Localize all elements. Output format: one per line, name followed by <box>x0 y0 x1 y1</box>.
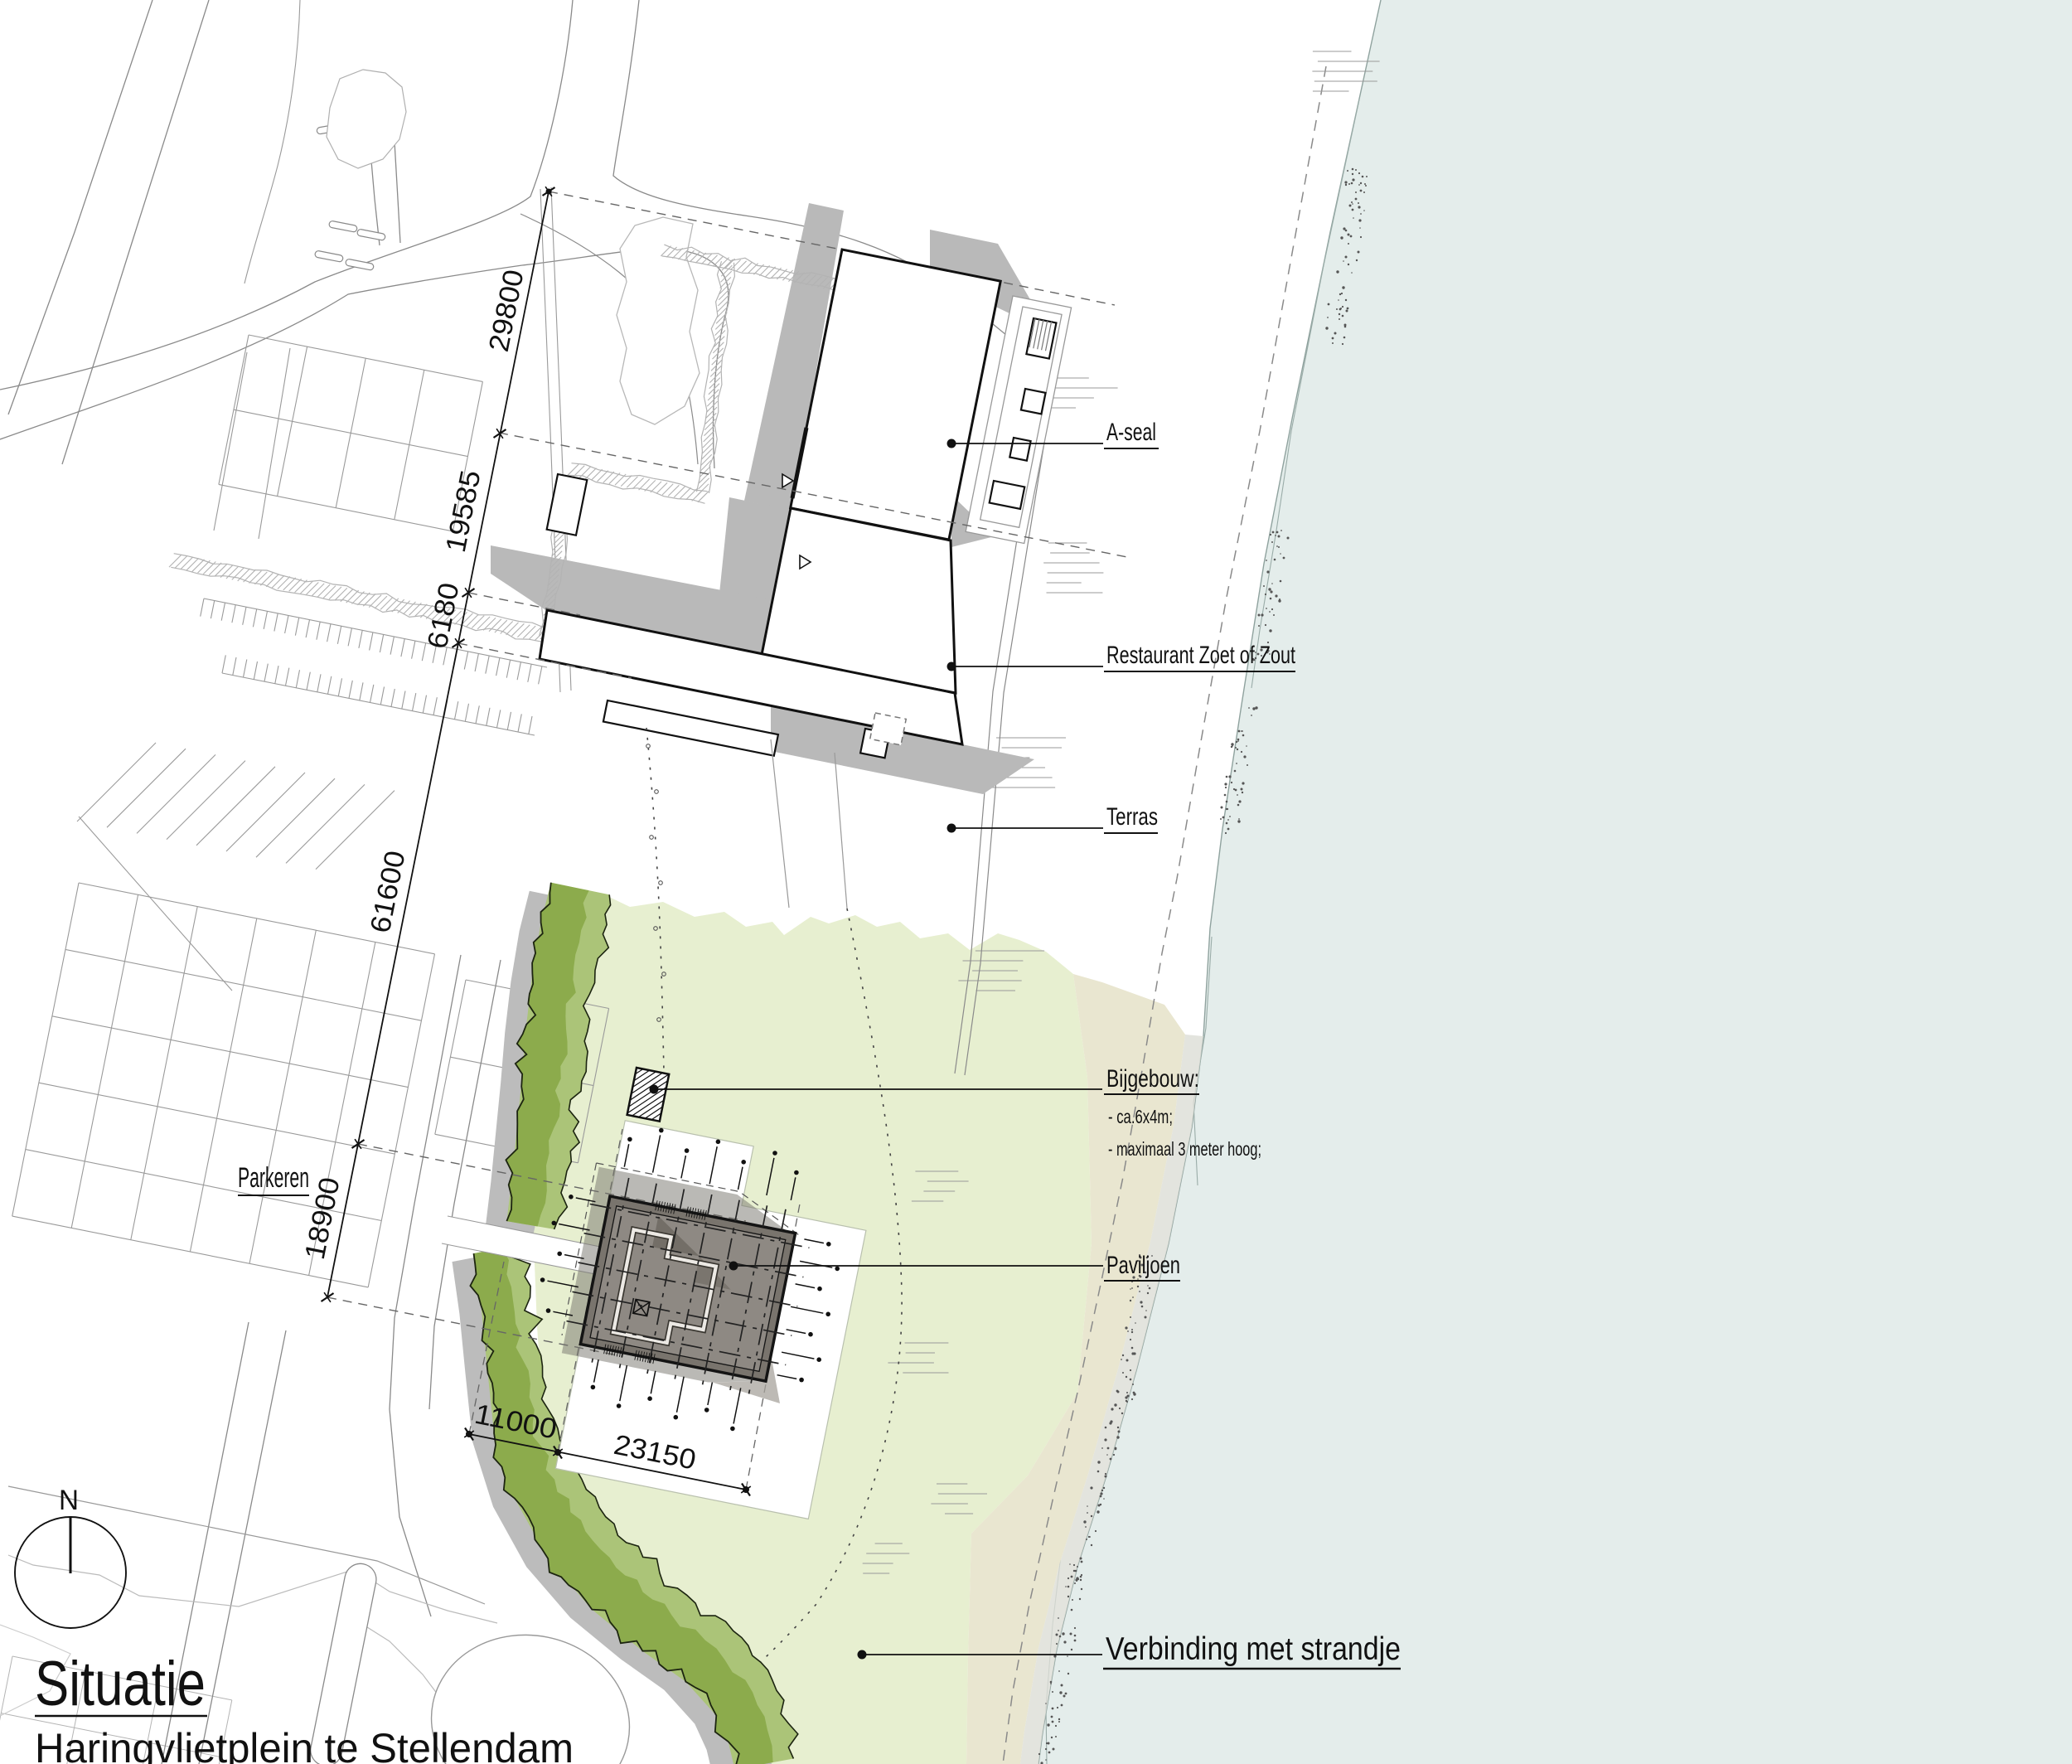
svg-text:Bijgebouw:: Bijgebouw: <box>1106 1065 1199 1093</box>
svg-text:Restaurant Zoet of Zout: Restaurant Zoet of Zout <box>1106 642 1295 669</box>
svg-text:Paviljoen: Paviljoen <box>1106 1252 1180 1279</box>
svg-text:- maximaal 3 meter hoog;: - maximaal 3 meter hoog; <box>1108 1138 1261 1160</box>
svg-text:- ca.6x4m;: - ca.6x4m; <box>1108 1106 1173 1127</box>
svg-text:Haringvlietplein te Stellendam: Haringvlietplein te Stellendam <box>35 1725 574 1764</box>
svg-text:Situatie: Situatie <box>35 1649 206 1719</box>
svg-text:Verbinding met strandje: Verbinding met strandje <box>1106 1631 1401 1667</box>
svg-text:N: N <box>59 1485 79 1516</box>
svg-text:A-seal: A-seal <box>1106 419 1156 446</box>
svg-text:Terras: Terras <box>1106 803 1158 831</box>
svg-text:Parkeren: Parkeren <box>238 1162 309 1194</box>
